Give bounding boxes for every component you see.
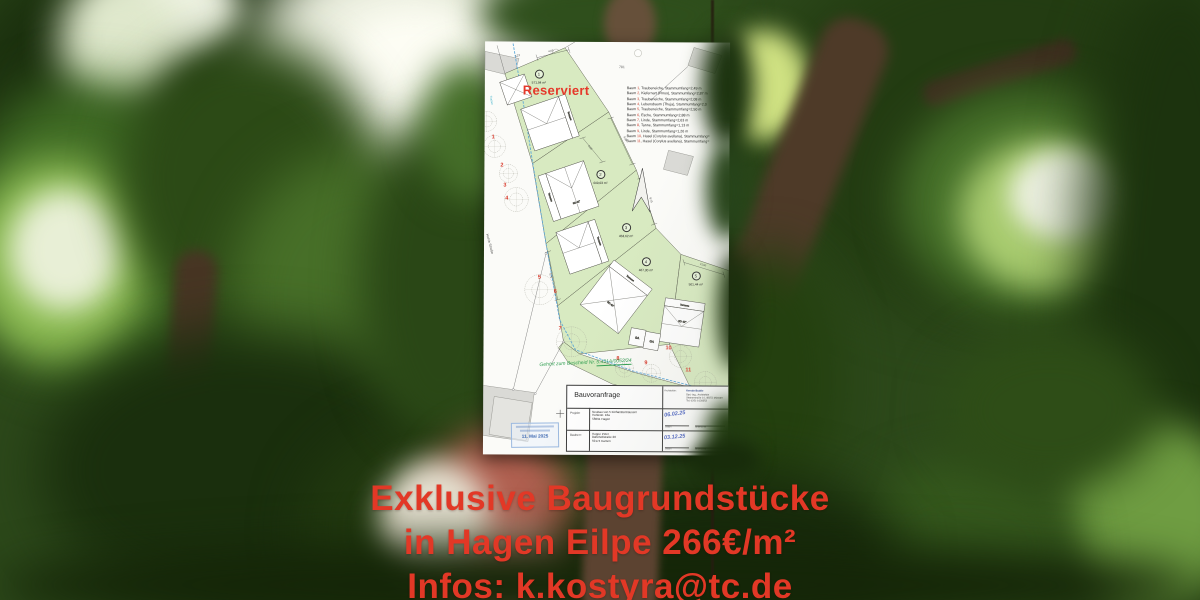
- tree-marker: 6: [554, 289, 557, 295]
- legend-row: Baum 11, Hasel (Corylus avellana), Stamm…: [627, 140, 710, 146]
- table-line: [589, 408, 590, 451]
- tree-marker: 2: [500, 162, 503, 168]
- document-title: Bauvoranfrage: [574, 392, 620, 399]
- foliage-blob: [702, 28, 754, 148]
- stamp-text-blur: [520, 429, 550, 431]
- foliage-blob: [940, 330, 1160, 490]
- tree-marker: 7: [559, 326, 562, 332]
- client-info: Hoppe Peter Bahnhofstraße 20 59174 Kamen: [592, 432, 616, 444]
- plot-4-label: 4467,30 m²: [630, 250, 662, 273]
- tree-marker: 10: [665, 345, 671, 351]
- svg-text:8,70: 8,70: [649, 197, 654, 204]
- tree-marker: 3: [503, 182, 506, 188]
- plot-2-label: 2449,63 m²: [584, 163, 616, 186]
- received-stamp: 11. Mai 2025: [511, 422, 559, 448]
- garage-label: GA: [635, 336, 640, 341]
- ad-headline: Exklusive Baugrundstücke: [0, 477, 1200, 521]
- handwritten-date-1: 06.02.25: [664, 410, 686, 419]
- tree-marker: 11: [685, 367, 691, 373]
- date-label: Datum: [665, 448, 671, 450]
- date-label: Datum: [665, 426, 671, 428]
- client-label: Bauherr:: [570, 433, 582, 437]
- advert-composition: Terrasse Terrasse SD 42° Terrasse: [0, 0, 1200, 600]
- tree-legend: Baum 1, Traubeneiche, Stammumfang=2,49 m…: [627, 86, 710, 145]
- project-info: Neubau von 5 Einfamilienhäusern Hohlestr…: [592, 410, 637, 422]
- punch-hole: [634, 50, 641, 57]
- stamp-text-blur: [516, 425, 554, 427]
- site-plan-document: Terrasse Terrasse SD 42° Terrasse: [483, 41, 730, 455]
- survey-cross: [556, 410, 564, 418]
- handwritten-date-2: 03.12.25: [664, 433, 686, 441]
- architect-label: Architektin:: [664, 389, 676, 392]
- table-line: [662, 386, 663, 451]
- foliage-blob: [706, 140, 750, 240]
- plot-3-label: 3453,62 m²: [610, 216, 642, 239]
- parcel-number: 781: [619, 65, 625, 69]
- plot-5-label: 5501,44 m²: [680, 264, 712, 287]
- architect-info: Dipl.-Ing., Architektin Steinerstraße 14…: [686, 393, 723, 402]
- foliage-blob: [718, 250, 752, 370]
- advert-text: Exklusive Baugrundstücke in Hagen Eilpe …: [0, 477, 1200, 600]
- ad-price-line: in Hagen Eilpe 266€/m²: [0, 521, 1200, 565]
- stamp-date: 11. Mai 2025: [512, 433, 558, 439]
- signature-label: Unterschrift: [695, 426, 706, 428]
- house-5: Terrasse SD 42°: [659, 298, 705, 347]
- ad-contact-line: Infos: k.kostyra@tc.de: [0, 565, 1200, 600]
- tree-marker: 1: [492, 134, 495, 140]
- foliage-blob: [690, 440, 760, 480]
- architect-name: Kerstin Budde: [686, 389, 703, 392]
- plot-1-label: 1571,94 m²: [523, 63, 555, 86]
- sunlight-patch: [10, 190, 120, 310]
- garage-label: GA: [649, 339, 654, 344]
- project-label: Projekt:: [570, 411, 580, 415]
- tree-marker: 9: [644, 360, 647, 366]
- tree-marker: 5: [538, 275, 541, 281]
- tree-marker: 4: [505, 195, 508, 201]
